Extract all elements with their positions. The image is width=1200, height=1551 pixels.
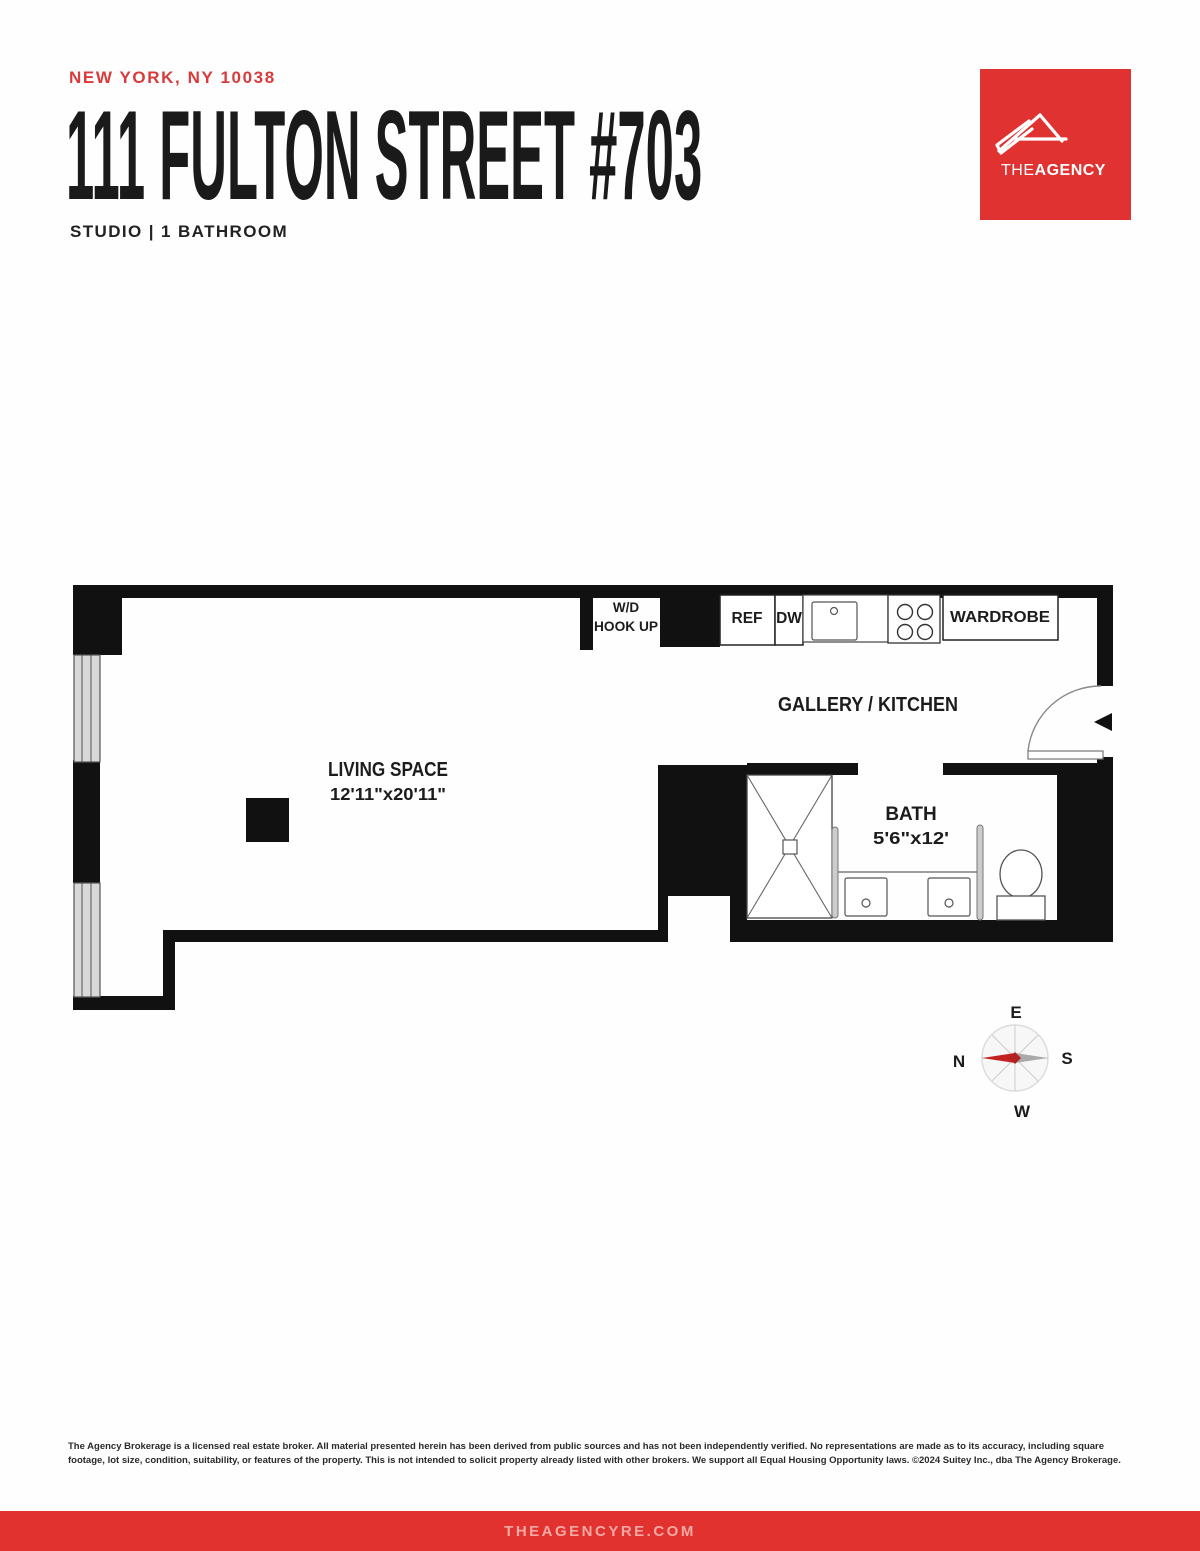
walls xyxy=(73,585,1113,1010)
compass-e: E xyxy=(1010,1003,1021,1022)
bath-label: BATH xyxy=(885,804,936,825)
toilet-tank xyxy=(997,896,1045,920)
ref-label: REF xyxy=(732,610,763,627)
wd-label-1: W/D xyxy=(613,600,639,615)
shower-drain xyxy=(783,840,797,854)
sink-right xyxy=(928,878,970,916)
entry-door xyxy=(1028,686,1112,759)
gallery-kitchen-label: GALLERY / KITCHEN xyxy=(778,694,958,716)
bath-dims-label: 5'6"x12' xyxy=(873,828,949,848)
footer-bar: THEAGENCYRE.COM xyxy=(0,1511,1200,1551)
compass-s: S xyxy=(1061,1049,1072,1068)
compass-rose-icon: E S W N xyxy=(953,1003,1073,1121)
toilet-bowl xyxy=(1000,850,1042,898)
sink-left xyxy=(845,878,887,916)
flyer-page: NEW YORK, NY 10038 111 FULTON STREET #70… xyxy=(0,0,1200,1551)
wardrobe-label: WARDROBE xyxy=(950,609,1050,626)
window-band-upper xyxy=(74,655,100,762)
structural-column xyxy=(246,798,289,842)
sink-faucet xyxy=(831,608,838,615)
compass-w: W xyxy=(1014,1102,1031,1121)
living-space-label: LIVING SPACE xyxy=(328,759,448,781)
window-band-lower xyxy=(74,883,100,997)
dw-label: DW xyxy=(776,610,802,627)
wd-label-2: HOOK UP xyxy=(594,619,658,634)
entry-arrow-icon xyxy=(1094,713,1112,731)
legal-disclaimer: The Agency Brokerage is a licensed real … xyxy=(68,1440,1138,1467)
compass-n: N xyxy=(953,1052,965,1071)
bath-partition-left xyxy=(832,827,838,918)
bath-partition-right xyxy=(977,825,983,920)
living-dims-label: 12'11"x20'11" xyxy=(330,784,446,804)
floor-plan: W/D HOOK UP REF DW WARDROBE GALLERY / KI… xyxy=(0,0,1200,1551)
footer-website-link[interactable]: THEAGENCYRE.COM xyxy=(504,1523,696,1540)
